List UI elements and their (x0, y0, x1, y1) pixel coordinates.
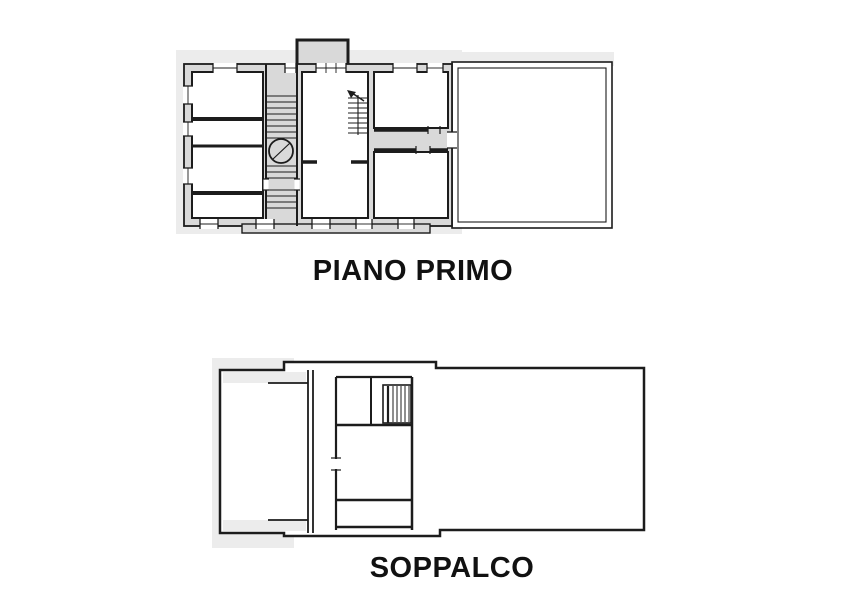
central-room (302, 72, 368, 218)
terrace (452, 62, 612, 228)
left-rooms (192, 72, 263, 218)
floorplan-page: PIANO PRIMO (0, 0, 847, 607)
windows-left (183, 86, 193, 184)
balcony (297, 40, 348, 66)
piano-primo-plan: PIANO PRIMO (176, 40, 614, 287)
soppalco-label: SOPPALCO (370, 552, 535, 584)
floorplan-canvas: PIANO PRIMO (0, 0, 847, 607)
terrace-door (447, 132, 457, 148)
soppalco-plan: SOPPALCO (212, 358, 644, 584)
outer-boundary (220, 362, 644, 536)
piano-primo-label: PIANO PRIMO (313, 255, 513, 287)
